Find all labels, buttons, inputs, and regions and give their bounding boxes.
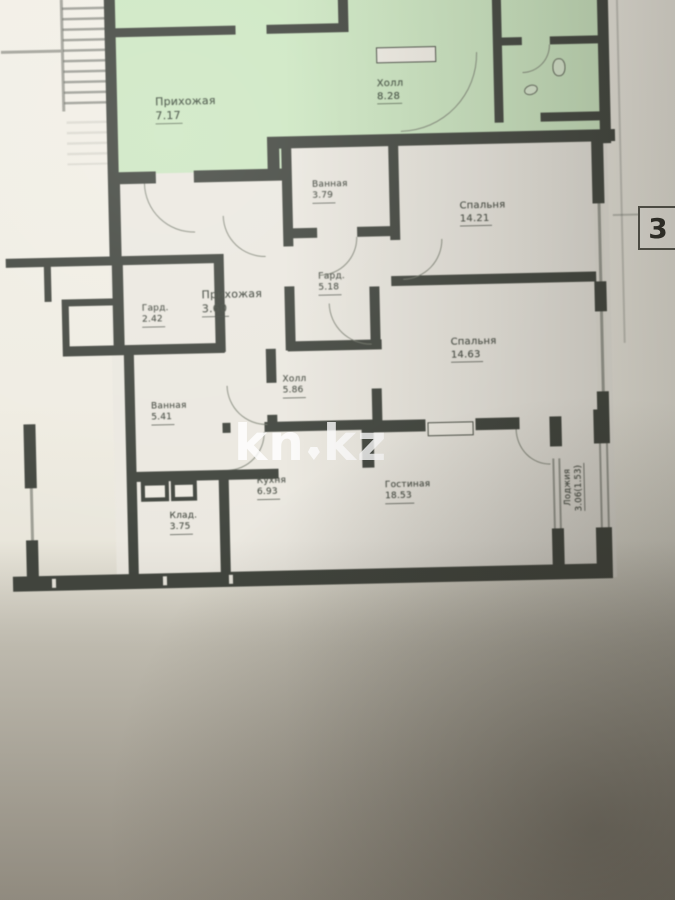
room-area: 3.06(1.53) bbox=[573, 463, 586, 512]
room-label: Клад. 3.75 bbox=[169, 510, 222, 535]
room-name: Ванная bbox=[312, 178, 376, 191]
room-name: Гард. bbox=[142, 302, 198, 315]
wall bbox=[62, 298, 119, 306]
room-name: Гостиная bbox=[385, 478, 465, 491]
watermark-text: kz bbox=[323, 414, 387, 472]
window-mullion bbox=[229, 575, 233, 584]
room-area: 3.60 bbox=[202, 302, 230, 317]
wall bbox=[44, 258, 52, 302]
wall bbox=[194, 169, 282, 183]
floor-plan-photo: Прихожая 7.17 Холл 8.28 Ванная 3.79 Спал… bbox=[0, 0, 675, 900]
room-area: 8.28 bbox=[377, 90, 402, 104]
room-label: Гостиная 18.53 bbox=[385, 478, 466, 503]
room-label: Холл 8.28 bbox=[377, 77, 438, 104]
wall bbox=[475, 417, 519, 430]
wall bbox=[338, 0, 349, 32]
room-label: Прихожая 7.17 bbox=[155, 93, 251, 124]
drawing-border bbox=[616, 0, 626, 343]
room-name: Клад. bbox=[169, 510, 221, 522]
room-area: 2.42 bbox=[142, 314, 165, 327]
room-label: Кухня 6.93 bbox=[257, 475, 318, 500]
room-name: Ванная bbox=[151, 400, 215, 413]
room-area: 7.17 bbox=[155, 109, 183, 124]
wall bbox=[1, 50, 61, 54]
window bbox=[30, 488, 34, 540]
wall bbox=[388, 144, 400, 240]
wall bbox=[266, 349, 277, 383]
wall bbox=[552, 528, 565, 564]
duct-box bbox=[141, 481, 169, 502]
room-name: Гард. bbox=[318, 270, 374, 283]
room-area: 14.21 bbox=[460, 212, 492, 226]
room-name: Спальня bbox=[451, 335, 531, 349]
plan-number-callout: 3 bbox=[638, 206, 675, 250]
wall bbox=[108, 172, 122, 264]
wall bbox=[596, 527, 613, 563]
wall bbox=[540, 111, 608, 122]
wall bbox=[594, 281, 607, 311]
room-area: 3.75 bbox=[170, 522, 193, 535]
wall bbox=[23, 424, 36, 488]
wall bbox=[112, 256, 125, 352]
room-area: 18.53 bbox=[385, 491, 414, 504]
watermark-text: kn bbox=[234, 414, 305, 472]
plan-number: 3 bbox=[640, 208, 675, 248]
room-name: Холл bbox=[377, 77, 437, 91]
wall bbox=[597, 391, 609, 409]
wall bbox=[591, 129, 605, 203]
wall bbox=[597, 0, 612, 143]
room-label: Гард. 5.18 bbox=[318, 270, 375, 295]
wall bbox=[62, 299, 70, 351]
wall bbox=[6, 256, 122, 268]
wall bbox=[266, 23, 346, 34]
room-label: Прихожая 3.60 bbox=[201, 286, 294, 317]
wall bbox=[26, 540, 39, 576]
room-area: 5.18 bbox=[318, 282, 341, 295]
room-area: 5.86 bbox=[283, 385, 306, 398]
room-name: Кухня bbox=[257, 475, 317, 488]
room-area: 14.63 bbox=[451, 349, 483, 363]
room-label: Гард. 2.42 bbox=[142, 302, 199, 327]
room-label: Ванная 3.79 bbox=[312, 178, 377, 203]
room-name: Прихожая bbox=[155, 93, 250, 109]
door-leaf bbox=[427, 421, 473, 436]
room-name: Холл bbox=[282, 373, 334, 385]
stairs-icon bbox=[62, 0, 107, 111]
room-area: 5.41 bbox=[151, 412, 174, 425]
location-pin-icon bbox=[308, 447, 320, 460]
wall bbox=[549, 416, 562, 446]
room-label: Спальня 14.63 bbox=[451, 335, 532, 363]
toilet-icon bbox=[552, 58, 565, 76]
room-area: 3.79 bbox=[312, 191, 335, 204]
wall bbox=[222, 423, 230, 433]
stairs-icon bbox=[66, 113, 107, 166]
room-name: Прихожая bbox=[201, 286, 293, 302]
wall bbox=[593, 409, 610, 443]
watermark: knkz bbox=[234, 414, 387, 472]
room-area: 6.93 bbox=[257, 487, 280, 500]
room-label: Холл 5.86 bbox=[282, 373, 335, 398]
room-label: Спальня 14.21 bbox=[459, 199, 540, 227]
window-mullion bbox=[163, 576, 167, 585]
room-label: Лоджия 3.06(1.53) bbox=[562, 442, 586, 532]
wall bbox=[502, 37, 522, 45]
floor-plan-drawing: Прихожая 7.17 Холл 8.28 Ванная 3.79 Спал… bbox=[0, 0, 675, 621]
wall bbox=[293, 228, 317, 239]
room-label: Ванная 5.41 bbox=[151, 400, 216, 425]
duct-box bbox=[171, 481, 197, 502]
window-mullion bbox=[52, 579, 56, 588]
room-name: Спальня bbox=[459, 199, 539, 213]
